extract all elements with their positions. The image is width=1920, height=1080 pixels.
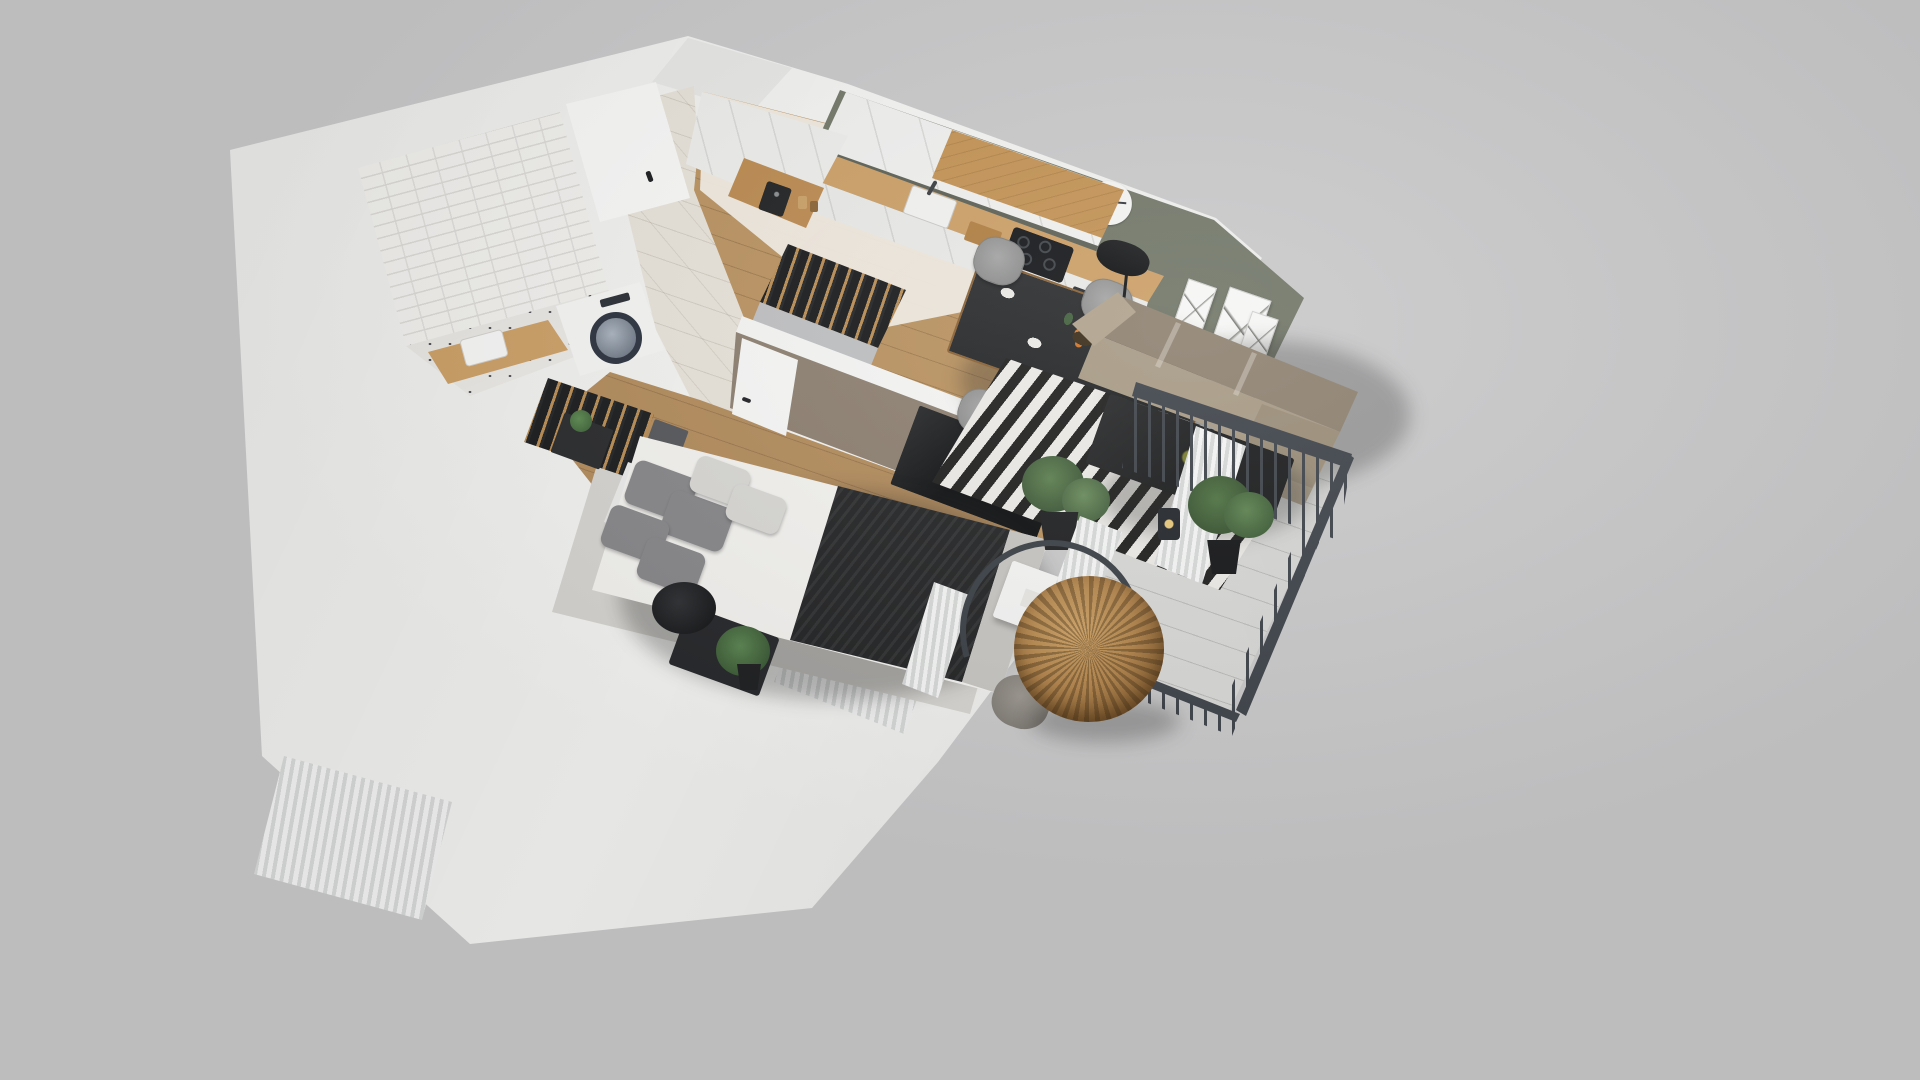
scene-lighting-overlay [0,0,1920,1080]
floorplan-render [0,0,1920,1080]
